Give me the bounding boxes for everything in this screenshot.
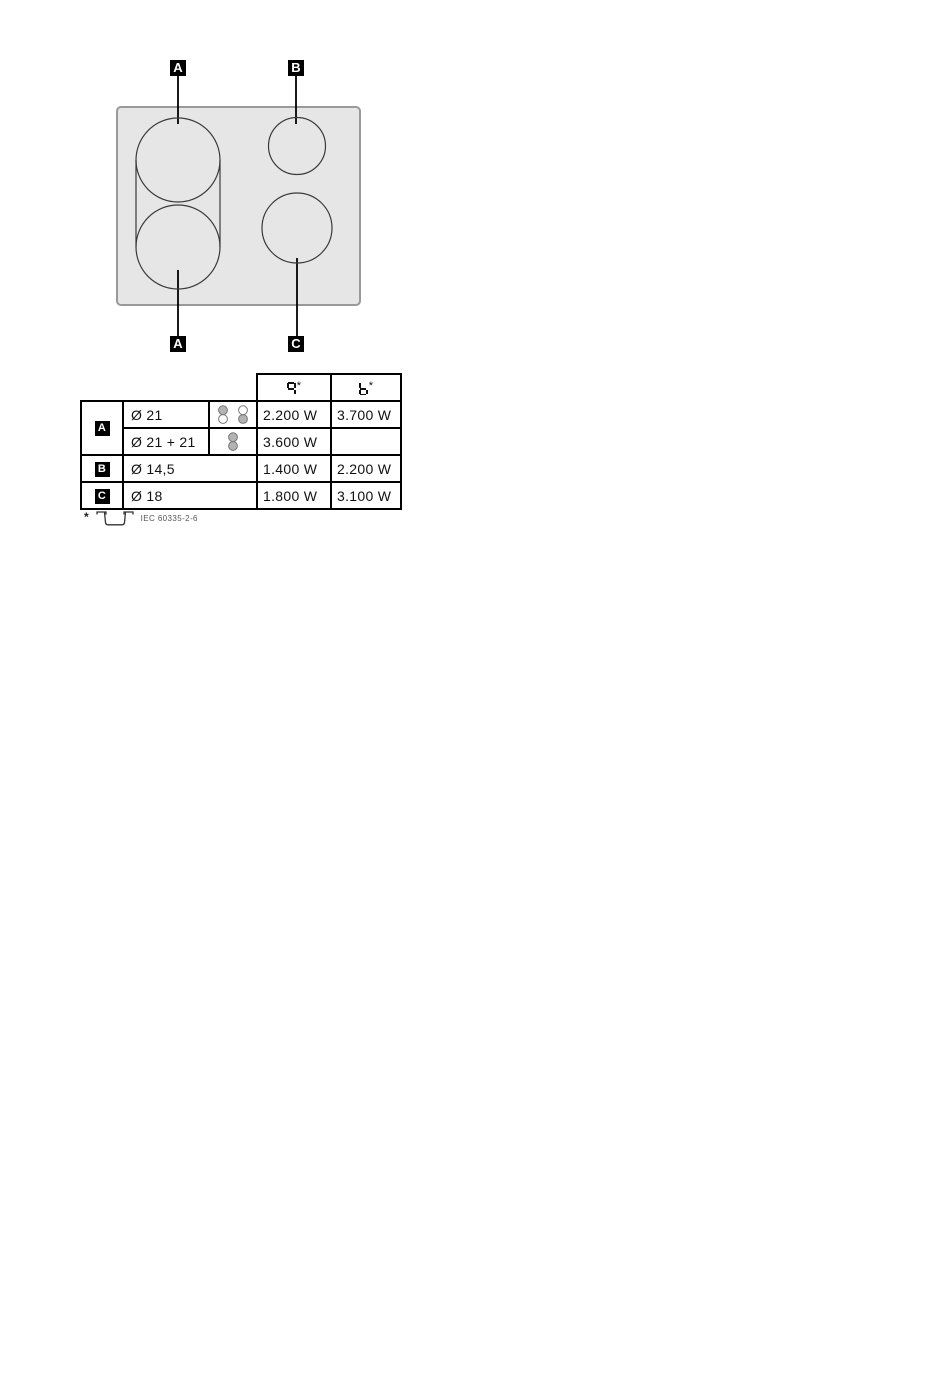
header-spacer [81,374,257,401]
zone-usage-icons-cell [209,428,257,455]
zone-label-a-rear: A [170,60,186,76]
rear-zone-selected-icon [217,405,229,425]
zone-label-b: B [288,60,304,76]
row-badge-c: C [95,489,110,504]
power-cell: 2.200 W [257,401,331,428]
diameter-cell: Ø 21 + 21 [123,428,209,455]
asterisk-marker: * [297,380,302,392]
power-cell: 2.200 W [331,455,401,482]
power-spec-table: * * A Ø 21 2.200 W 3.700 W [80,373,402,510]
footnote-standard-text: IEC 60335-2-6 [141,514,198,523]
diameter-cell: Ø 21 [123,401,209,428]
seven-segment-9-icon [287,382,296,395]
power-cell: 3.600 W [257,428,331,455]
power-cell: 1.800 W [257,482,331,509]
row-badge-b: B [95,462,110,477]
power-cell-empty [331,428,401,455]
row-badge-a: A [95,421,110,436]
cookware-pan-icon [95,510,135,527]
header-row: * * [81,374,401,401]
zone-label-c: C [288,336,304,352]
row-label-c-cell: C [81,482,123,509]
cooktop-diagram [110,50,380,360]
table-row-c: C Ø 18 1.800 W 3.100 W [81,482,401,509]
column-header-power-level-9: * [257,374,331,401]
footnote: * IEC 60335-2-6 [84,510,198,527]
table-row-b: B Ø 14,5 1.400 W 2.200 W [81,455,401,482]
table-row-a-combined: Ø 21 + 21 3.600 W [81,428,401,455]
both-zones-selected-icon [227,432,239,452]
zone-usage-icons-cell [209,401,257,428]
diameter-cell: Ø 14,5 [123,455,257,482]
power-cell: 3.100 W [331,482,401,509]
row-label-b-cell: B [81,455,123,482]
footnote-asterisk: * [84,510,89,524]
power-cell: 1.400 W [257,455,331,482]
front-zone-selected-icon [237,405,249,425]
table-row-a-single: A Ø 21 2.200 W 3.700 W [81,401,401,428]
diameter-cell: Ø 18 [123,482,257,509]
zone-label-a-front: A [170,336,186,352]
power-cell: 3.700 W [331,401,401,428]
row-label-a-cell: A [81,401,123,455]
seven-segment-b-icon [359,382,368,395]
column-header-power-level-b: * [331,374,401,401]
manual-page: A B A C * * A Ø 21 [0,0,950,1379]
asterisk-marker: * [369,380,374,392]
